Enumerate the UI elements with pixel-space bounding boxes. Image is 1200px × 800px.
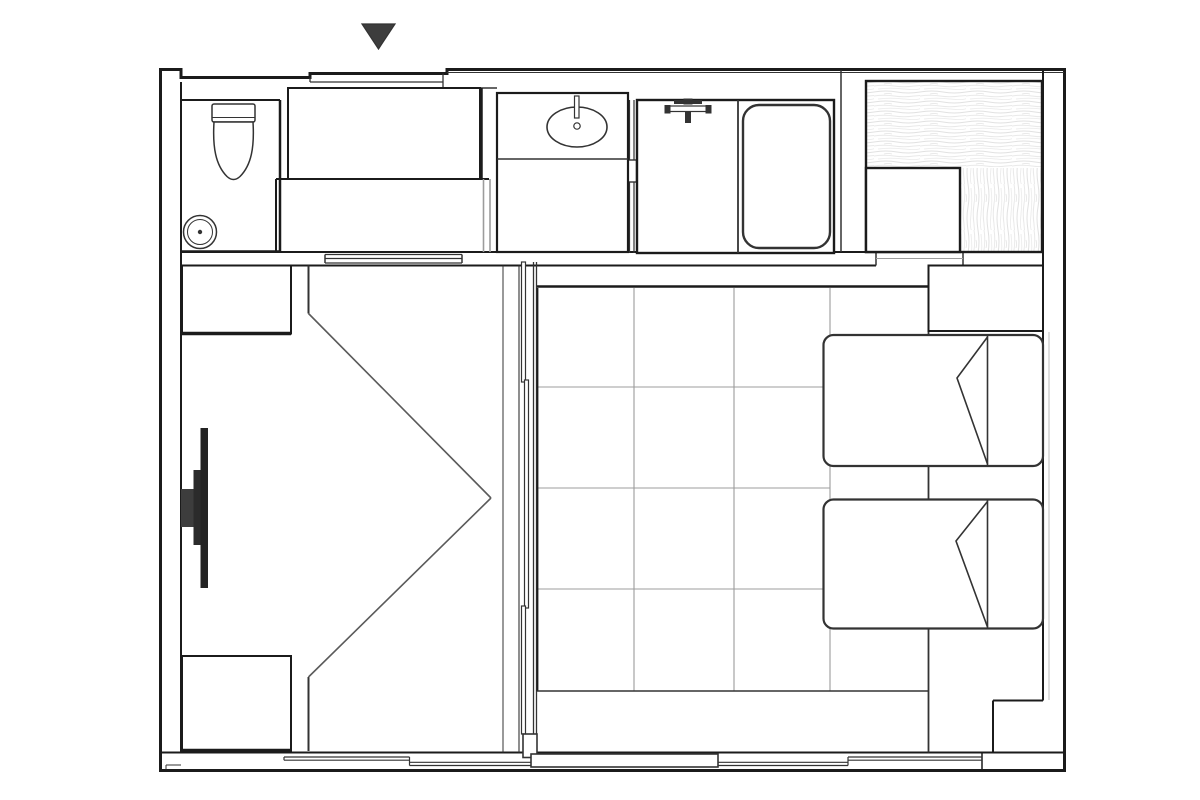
bed-top — [824, 335, 1044, 466]
bathtub — [743, 105, 830, 248]
floorplan-svg — [0, 0, 1200, 800]
wood-counter — [866, 81, 1042, 252]
floor-drain-stool — [184, 216, 217, 249]
floorplan-page — [0, 0, 1200, 800]
bed-bottom — [824, 500, 1044, 629]
window-door-panel — [531, 754, 718, 767]
desk-upper — [182, 266, 291, 334]
nightstand — [929, 266, 1044, 332]
desk-lower — [182, 656, 291, 751]
